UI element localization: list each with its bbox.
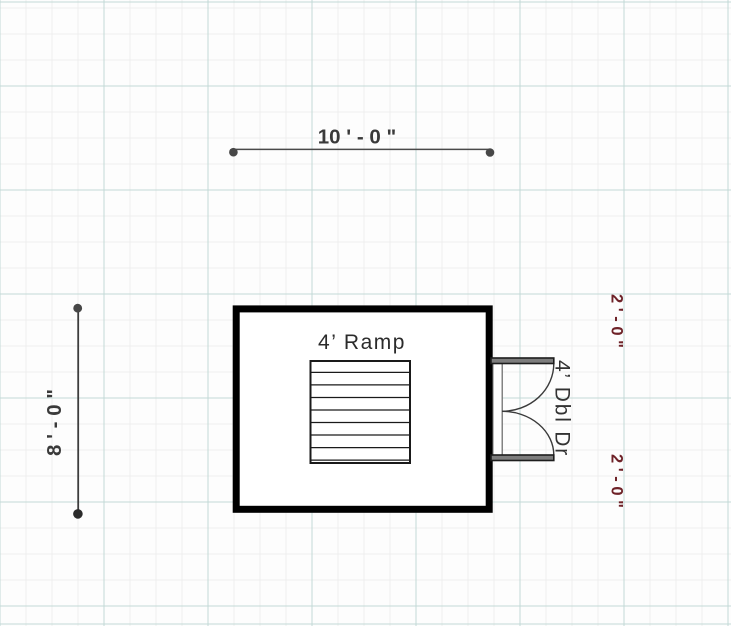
svg-text:8 ' - 0 ": 8 ' - 0 " [43, 389, 66, 456]
svg-text:4’ Ramp: 4’ Ramp [318, 331, 406, 354]
svg-text:2 ' - 0 ": 2 ' - 0 " [608, 294, 626, 348]
svg-text:10 ' - 0 ": 10 ' - 0 " [318, 126, 396, 149]
svg-text:2 ' - 0 ": 2 ' - 0 " [608, 454, 626, 508]
svg-text:4’ Dbl Dr: 4’ Dbl Dr [551, 360, 574, 457]
